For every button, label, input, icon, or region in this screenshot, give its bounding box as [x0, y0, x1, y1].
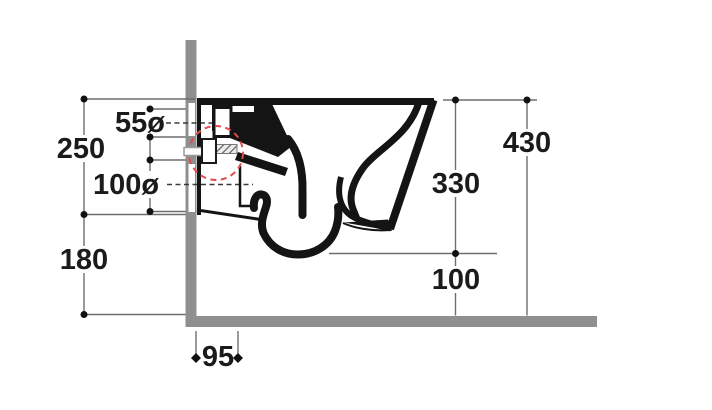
bolt-pin [184, 148, 203, 156]
dimension-labels: 250 55ø 100ø 180 95 330 100 430 [57, 107, 551, 373]
dim-100-label: 100 [432, 264, 480, 296]
trap-u-bend [254, 194, 339, 254]
dim-430-label: 430 [503, 127, 551, 159]
floor-section [186, 316, 598, 327]
wall-cutout-outlet [189, 164, 196, 212]
dim-95-label: 95 [202, 341, 234, 373]
wall-cutout-inlet [189, 103, 196, 136]
dim-330-label: 330 [432, 168, 480, 200]
label-backgrounds [56, 110, 552, 370]
bowl-inner-wall [351, 102, 419, 219]
dim-95-left-marker [191, 353, 201, 363]
technical-drawing-svg: 250 55ø 100ø 180 95 330 100 430 [0, 0, 712, 410]
dim-180-label: 180 [60, 244, 108, 276]
wall-section [186, 40, 197, 316]
dim-100o-label: 100ø [93, 169, 159, 201]
bolt-block [202, 139, 216, 163]
bolt-threaded-rod [216, 145, 237, 154]
flush-rim-channel [232, 106, 254, 112]
trap-weir [288, 139, 303, 215]
dim-250-label: 250 [57, 133, 105, 165]
flush-inlet-socket [214, 108, 231, 137]
dim-95-right-marker [233, 353, 243, 363]
toilet-cross-section [197, 100, 434, 255]
dim-55o-label: 55ø [115, 107, 165, 139]
drawing-canvas: 250 55ø 100ø 180 95 330 100 430 [0, 0, 712, 410]
